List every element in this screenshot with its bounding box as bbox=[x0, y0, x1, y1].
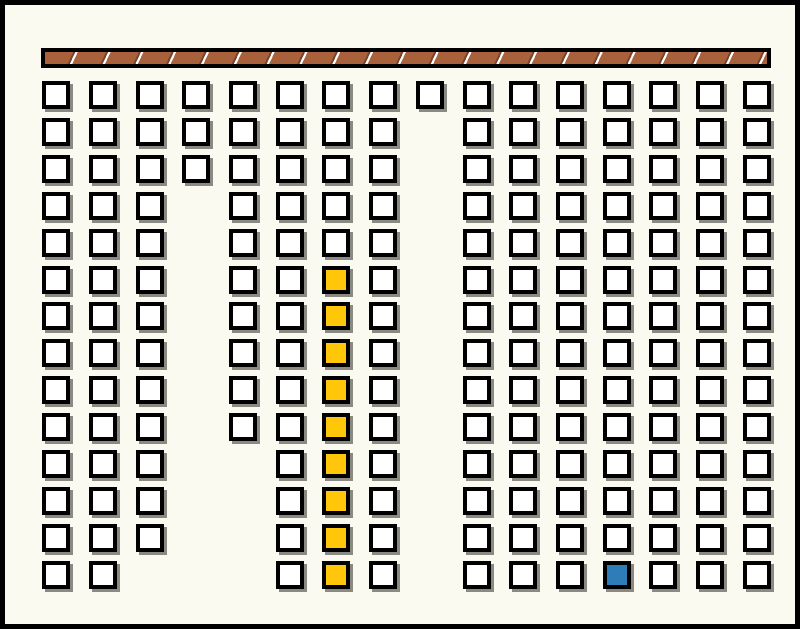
shelf-cell bbox=[743, 413, 771, 441]
shelf-cell bbox=[696, 561, 724, 589]
highlighted-shelf-cell bbox=[322, 487, 350, 515]
shelf-cell bbox=[89, 266, 117, 294]
shelf-cell bbox=[89, 302, 117, 330]
shelf-cell bbox=[276, 413, 304, 441]
shelf-cell bbox=[42, 376, 70, 404]
shelf-cell bbox=[369, 155, 397, 183]
shelf-cell bbox=[229, 376, 257, 404]
shelf-cell bbox=[603, 155, 631, 183]
shelf-cell bbox=[603, 376, 631, 404]
shelf-cell bbox=[42, 413, 70, 441]
shelf-cell bbox=[136, 487, 164, 515]
shelf-cell bbox=[136, 192, 164, 220]
shelf-cell bbox=[463, 561, 491, 589]
shelf-cell bbox=[369, 413, 397, 441]
shelf-cell bbox=[696, 376, 724, 404]
shelf-cell bbox=[556, 155, 584, 183]
shelf-cell bbox=[509, 487, 537, 515]
highlighted-shelf-cell bbox=[322, 561, 350, 589]
shelf-cell bbox=[509, 450, 537, 478]
shelf-cell bbox=[743, 450, 771, 478]
shelf-cell bbox=[276, 376, 304, 404]
shelf-cell bbox=[509, 302, 537, 330]
shelf-cell bbox=[276, 81, 304, 109]
shelf-cell bbox=[649, 524, 677, 552]
shelf-cell bbox=[276, 487, 304, 515]
shelf-cell bbox=[649, 450, 677, 478]
shelf-cell bbox=[743, 192, 771, 220]
shelf-cell bbox=[182, 81, 210, 109]
shelf-cell bbox=[743, 524, 771, 552]
shelf-cell bbox=[136, 413, 164, 441]
highlighted-shelf-cell bbox=[322, 266, 350, 294]
shelf-cell bbox=[136, 302, 164, 330]
shelf-cell bbox=[556, 81, 584, 109]
shelf-cell bbox=[416, 81, 444, 109]
shelf-cell bbox=[182, 155, 210, 183]
shelf-cell bbox=[696, 229, 724, 257]
shelf-cell bbox=[369, 229, 397, 257]
shelf-cell bbox=[369, 339, 397, 367]
shelf-cell bbox=[556, 266, 584, 294]
shelf-cell bbox=[463, 339, 491, 367]
shelf-cell bbox=[696, 339, 724, 367]
shelf-cell bbox=[369, 118, 397, 146]
shelf-cell bbox=[556, 561, 584, 589]
shelf-cell bbox=[89, 487, 117, 515]
shelf-cell bbox=[463, 192, 491, 220]
shelf-cell bbox=[136, 81, 164, 109]
shelf-cell bbox=[649, 155, 677, 183]
shelf-cell bbox=[696, 413, 724, 441]
shelf-cell bbox=[696, 487, 724, 515]
shelf-cell bbox=[369, 302, 397, 330]
shelf-cell bbox=[89, 450, 117, 478]
shelf-cell bbox=[556, 450, 584, 478]
store-layout-map bbox=[0, 0, 800, 629]
shelf-cell bbox=[136, 155, 164, 183]
shelf-cell bbox=[42, 450, 70, 478]
shelf-cell bbox=[229, 302, 257, 330]
shelf-cell bbox=[276, 229, 304, 257]
shelf-cell bbox=[509, 155, 537, 183]
shelf-cell bbox=[276, 524, 304, 552]
shelf-cell bbox=[369, 376, 397, 404]
shelf-cell bbox=[649, 487, 677, 515]
shelf-cell bbox=[276, 155, 304, 183]
shelf-cell bbox=[743, 561, 771, 589]
shelf-cell bbox=[743, 229, 771, 257]
shelf-cell bbox=[556, 487, 584, 515]
shelf-cell bbox=[42, 561, 70, 589]
shelf-cell bbox=[649, 302, 677, 330]
shelf-cell bbox=[322, 155, 350, 183]
shelf-cell bbox=[556, 229, 584, 257]
shelf-cell bbox=[743, 81, 771, 109]
shelf-cell bbox=[322, 192, 350, 220]
shelf-cell bbox=[463, 155, 491, 183]
target-shelf-cell bbox=[603, 561, 631, 589]
shelf-cell bbox=[276, 450, 304, 478]
shelf-cell bbox=[42, 155, 70, 183]
shelf-cell bbox=[369, 487, 397, 515]
shelf-cell bbox=[89, 376, 117, 404]
shelf-cell bbox=[322, 81, 350, 109]
shelf-cell bbox=[42, 229, 70, 257]
shelf-cell bbox=[556, 118, 584, 146]
shelf-cell bbox=[136, 118, 164, 146]
shelf-cell bbox=[743, 155, 771, 183]
shelf-cell bbox=[136, 450, 164, 478]
shelf-cell bbox=[743, 266, 771, 294]
shelf-cell bbox=[649, 81, 677, 109]
shelf-cell bbox=[89, 413, 117, 441]
shelf-cell bbox=[89, 118, 117, 146]
shelf-cell bbox=[89, 229, 117, 257]
shelf-cell bbox=[42, 487, 70, 515]
shelf-cell bbox=[276, 302, 304, 330]
shelf-cell bbox=[42, 339, 70, 367]
shelf-cell bbox=[509, 229, 537, 257]
shelf-cell bbox=[509, 376, 537, 404]
shelf-cell bbox=[649, 266, 677, 294]
shelf-cell bbox=[276, 339, 304, 367]
shelf-cell bbox=[89, 81, 117, 109]
highlighted-shelf-cell bbox=[322, 302, 350, 330]
shelf-cell bbox=[509, 524, 537, 552]
shelf-cell bbox=[89, 524, 117, 552]
shelf-cell bbox=[603, 118, 631, 146]
shelf-cell bbox=[276, 561, 304, 589]
shelf-cell bbox=[89, 561, 117, 589]
shelf-cell bbox=[136, 376, 164, 404]
highlighted-shelf-cell bbox=[322, 524, 350, 552]
shelf-cell bbox=[696, 155, 724, 183]
shelf-cell bbox=[463, 302, 491, 330]
shelf-cell bbox=[463, 266, 491, 294]
shelf-cell bbox=[603, 192, 631, 220]
shelf-cell bbox=[229, 155, 257, 183]
shelf-cell bbox=[743, 118, 771, 146]
shelf-cell bbox=[463, 376, 491, 404]
shelf-cell bbox=[696, 192, 724, 220]
shelf-cell bbox=[136, 524, 164, 552]
shelf-cell bbox=[509, 413, 537, 441]
shelf-cell bbox=[743, 302, 771, 330]
shelf-cell bbox=[696, 81, 724, 109]
shelf-cell bbox=[743, 339, 771, 367]
shelf-cell bbox=[743, 487, 771, 515]
shelf-cell bbox=[369, 192, 397, 220]
shelf-cell bbox=[603, 487, 631, 515]
shelf-cell bbox=[322, 118, 350, 146]
shelf-cell bbox=[369, 266, 397, 294]
shelf-cell bbox=[649, 561, 677, 589]
shelf-cell bbox=[229, 266, 257, 294]
shelf-cell bbox=[369, 450, 397, 478]
shelf-cell bbox=[369, 81, 397, 109]
shelf-cell bbox=[229, 339, 257, 367]
shelf-cell bbox=[463, 450, 491, 478]
shelf-cell bbox=[463, 118, 491, 146]
shelf-cell bbox=[509, 561, 537, 589]
shelf-cell bbox=[42, 81, 70, 109]
highlighted-shelf-cell bbox=[322, 339, 350, 367]
shelf-cell bbox=[509, 339, 537, 367]
shelf-cell bbox=[696, 524, 724, 552]
shelf-cell bbox=[136, 266, 164, 294]
shelf-cell bbox=[649, 118, 677, 146]
shelf-cell bbox=[603, 524, 631, 552]
shelf-cell bbox=[322, 229, 350, 257]
highlighted-shelf-cell bbox=[322, 413, 350, 441]
shelf-cell bbox=[509, 118, 537, 146]
shelf-cell bbox=[89, 155, 117, 183]
shelf-cell bbox=[42, 192, 70, 220]
shelf-cell bbox=[229, 192, 257, 220]
shelf-cell bbox=[276, 266, 304, 294]
shelf-cell bbox=[369, 561, 397, 589]
shelf-cell bbox=[463, 229, 491, 257]
shelf-cell bbox=[463, 487, 491, 515]
shelf-cell bbox=[603, 302, 631, 330]
shelf-cell bbox=[42, 524, 70, 552]
shelf-cell bbox=[276, 192, 304, 220]
shelf-cell bbox=[509, 266, 537, 294]
highlighted-shelf-cell bbox=[322, 450, 350, 478]
shelf-cell bbox=[42, 118, 70, 146]
shelf-cell bbox=[603, 81, 631, 109]
shelf-cell bbox=[649, 192, 677, 220]
shelf-cell bbox=[463, 524, 491, 552]
hatched-conveyor-bar bbox=[41, 48, 771, 68]
shelf-cell bbox=[603, 229, 631, 257]
shelf-cell bbox=[556, 339, 584, 367]
shelf-cell bbox=[229, 229, 257, 257]
shelf-cell bbox=[556, 413, 584, 441]
shelf-cell bbox=[603, 339, 631, 367]
shelf-cell bbox=[463, 81, 491, 109]
shelf-cell bbox=[136, 339, 164, 367]
shelf-cell bbox=[743, 376, 771, 404]
highlighted-shelf-cell bbox=[322, 376, 350, 404]
shelf-cell bbox=[649, 229, 677, 257]
shelf-cell bbox=[603, 450, 631, 478]
shelf-cell bbox=[696, 118, 724, 146]
shelf-cell bbox=[229, 118, 257, 146]
shelf-cell bbox=[603, 413, 631, 441]
shelf-cell bbox=[696, 302, 724, 330]
shelf-cell bbox=[556, 192, 584, 220]
shelf-cell bbox=[696, 450, 724, 478]
shelf-cell bbox=[229, 81, 257, 109]
shelf-cell bbox=[229, 413, 257, 441]
shelf-cell bbox=[42, 302, 70, 330]
shelf-cell bbox=[696, 266, 724, 294]
shelf-cell bbox=[649, 376, 677, 404]
shelf-cell bbox=[89, 339, 117, 367]
shelf-cell bbox=[509, 81, 537, 109]
shelf-cell bbox=[603, 266, 631, 294]
shelf-cell bbox=[42, 266, 70, 294]
shelf-cell bbox=[276, 118, 304, 146]
shelf-cell bbox=[136, 229, 164, 257]
shelf-cell bbox=[556, 524, 584, 552]
shelf-cell bbox=[463, 413, 491, 441]
shelf-cell bbox=[649, 339, 677, 367]
shelf-cell bbox=[556, 302, 584, 330]
shelf-cell bbox=[182, 118, 210, 146]
shelf-cell bbox=[369, 524, 397, 552]
shelf-cell bbox=[509, 192, 537, 220]
shelf-cell bbox=[556, 376, 584, 404]
shelf-cell bbox=[649, 413, 677, 441]
shelf-cell bbox=[89, 192, 117, 220]
